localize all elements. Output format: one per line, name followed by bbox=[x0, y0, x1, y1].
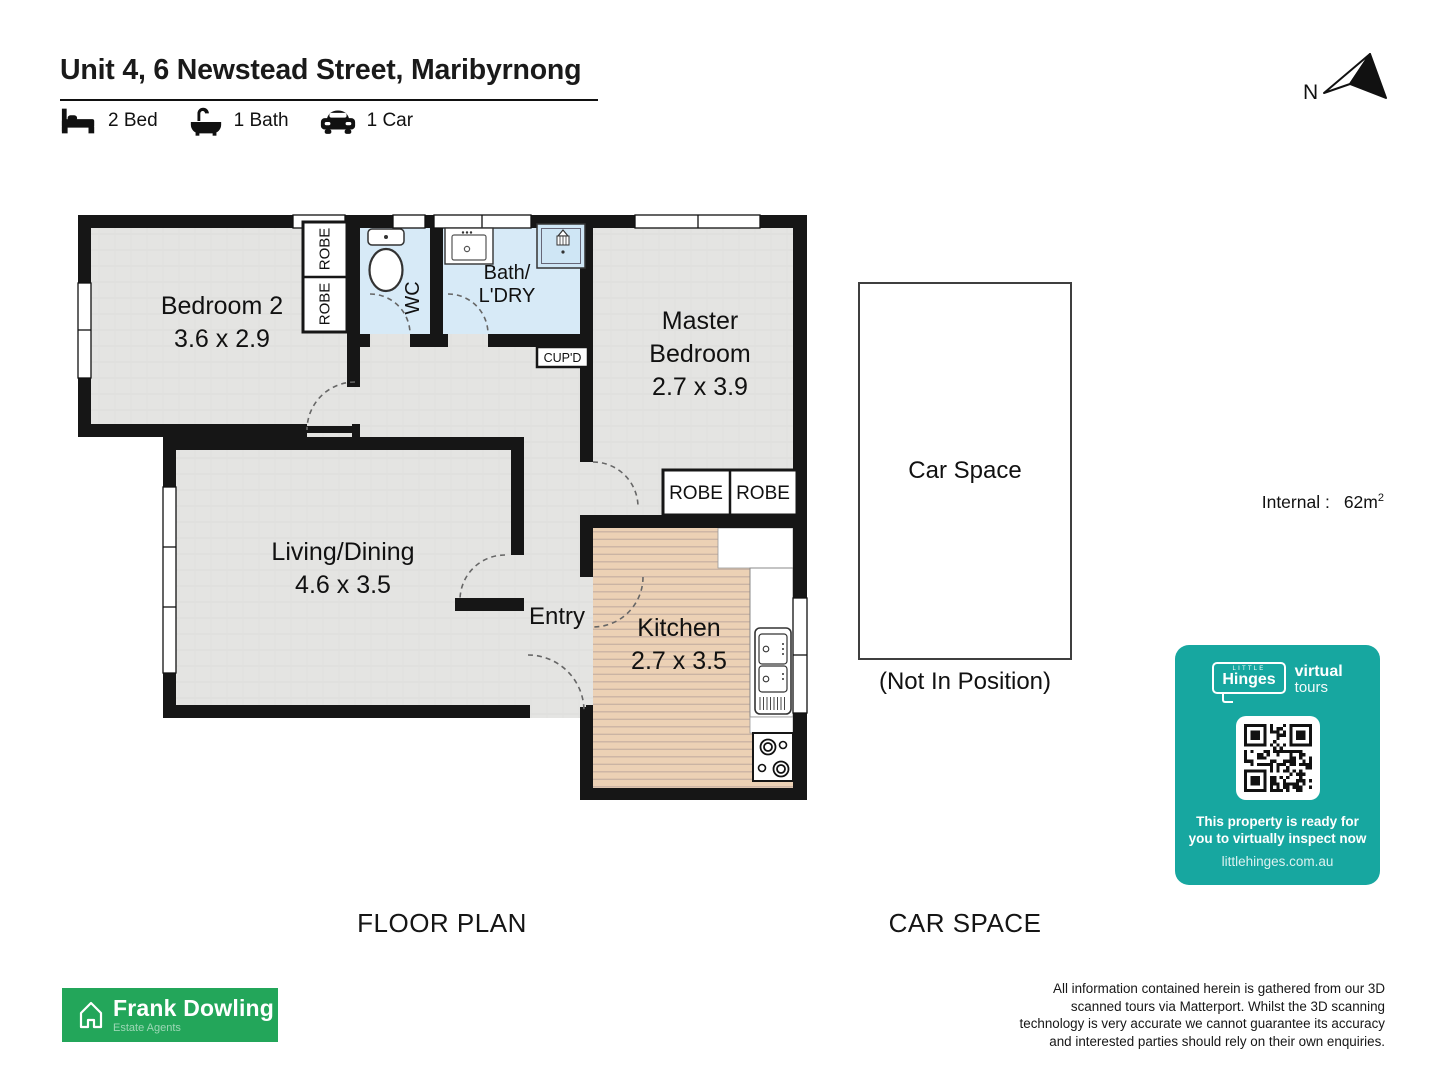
room-dims-living: 4.6 x 3.5 bbox=[295, 571, 391, 599]
internal-area-value: 62m bbox=[1344, 492, 1378, 512]
door-leaf bbox=[307, 426, 352, 433]
virtual-tour-badge: LITTLE Hinges virtual tours This propert… bbox=[1175, 645, 1380, 885]
room-label-living: Living/Dining bbox=[271, 538, 414, 566]
badge-message: This property is ready for you to virtua… bbox=[1189, 813, 1367, 847]
shower-icon bbox=[537, 224, 585, 268]
feature-beds-label: 2 Bed bbox=[108, 110, 158, 132]
robe-label: ROBE bbox=[736, 483, 790, 504]
room-label-entry: Entry bbox=[529, 603, 585, 630]
room-dims-bedroom2: 3.6 x 2.9 bbox=[174, 325, 270, 353]
feature-cars-label: 1 Car bbox=[367, 110, 413, 132]
robe-label: ROBE bbox=[317, 228, 334, 271]
room-label-bath-1: Bath/ bbox=[484, 262, 531, 284]
car-space-section-label: CAR SPACE bbox=[855, 908, 1075, 939]
room-label-wc: WC bbox=[402, 281, 424, 314]
bed-icon bbox=[60, 106, 98, 136]
room-dims-kitchen: 2.7 x 3.5 bbox=[631, 647, 727, 675]
north-arrow-icon: N bbox=[1298, 46, 1398, 108]
house-icon bbox=[78, 1000, 104, 1030]
internal-area-label: Internal : bbox=[1262, 492, 1330, 512]
speech-tail-icon bbox=[1222, 692, 1233, 703]
room-label-master-1: Master bbox=[662, 307, 738, 335]
robe-label: ROBE bbox=[669, 483, 723, 504]
kitchen-fixtures bbox=[753, 628, 793, 781]
sink-icon bbox=[445, 228, 493, 264]
toilet-icon bbox=[368, 229, 404, 291]
north-label: N bbox=[1303, 81, 1318, 104]
feature-baths-label: 1 Bath bbox=[234, 110, 289, 132]
room-dims-master: 2.7 x 3.9 bbox=[652, 373, 748, 401]
stove-icon bbox=[753, 733, 793, 781]
feature-cars: 1 Car bbox=[319, 106, 413, 136]
disclaimer: All information contained herein is gath… bbox=[985, 980, 1385, 1050]
kitchen-sink-icon bbox=[755, 628, 791, 714]
bath-icon bbox=[188, 105, 224, 137]
robe-label: ROBE bbox=[317, 283, 334, 326]
kitchen-bench bbox=[718, 528, 793, 568]
car-space-outline: Car Space bbox=[858, 282, 1072, 660]
feature-beds: 2 Bed bbox=[60, 106, 158, 136]
internal-area: Internal :62m2 bbox=[1262, 492, 1384, 513]
car-space-label: Car Space bbox=[908, 457, 1021, 485]
property-features: 2 Bed 1 Bath 1 Car bbox=[60, 105, 413, 137]
room-label-bath-2: L'DRY bbox=[479, 285, 536, 307]
agency-name: Frank Dowling bbox=[113, 996, 274, 1020]
floor-plan-section-label: FLOOR PLAN bbox=[332, 908, 552, 939]
car-space-note: (Not In Position) bbox=[853, 668, 1077, 696]
badge-url: littlehinges.com.au bbox=[1222, 854, 1334, 869]
hinges-logo: LITTLE Hinges virtual tours bbox=[1212, 662, 1342, 703]
car-icon bbox=[319, 106, 357, 136]
room-label-bedroom2: Bedroom 2 bbox=[161, 292, 283, 320]
room-label-master-2: Bedroom bbox=[649, 340, 750, 368]
feature-baths: 1 Bath bbox=[188, 105, 289, 137]
agency-tagline: Estate Agents bbox=[113, 1022, 274, 1034]
qr-code bbox=[1236, 716, 1320, 800]
page-title: Unit 4, 6 Newstead Street, Maribyrnong bbox=[60, 54, 581, 87]
title-underline bbox=[60, 99, 598, 101]
floorplan-page: Unit 4, 6 Newstead Street, Maribyrnong 2… bbox=[0, 0, 1440, 1080]
floor-plan-drawing: ROBE ROBE ROBE ROBE CUP'D bbox=[75, 210, 815, 805]
room-label-kitchen: Kitchen bbox=[637, 614, 720, 642]
hinges-logo-bubble: LITTLE Hinges bbox=[1212, 662, 1285, 694]
cupboard-label: CUP'D bbox=[544, 351, 582, 365]
agency-logo: Frank Dowling Estate Agents bbox=[62, 988, 278, 1042]
